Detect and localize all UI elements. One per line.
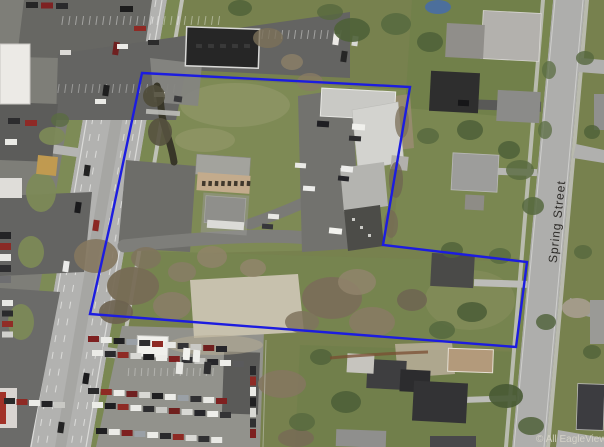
car-ll-1 bbox=[8, 118, 20, 124]
11-item bbox=[165, 342, 176, 348]
tree-bare-3 bbox=[153, 292, 191, 320]
11-item bbox=[118, 404, 129, 410]
car-parcel-2 bbox=[352, 124, 365, 131]
building-left-2 bbox=[0, 178, 22, 198]
grass-island-3 bbox=[18, 236, 44, 268]
kiosk-yellow bbox=[36, 155, 58, 176]
tree-green-22 bbox=[583, 345, 601, 359]
11-item bbox=[92, 402, 103, 408]
5-item bbox=[42, 401, 53, 407]
car-ll-2 bbox=[25, 120, 37, 126]
11-item bbox=[143, 406, 154, 412]
3-item bbox=[26, 2, 38, 8]
grass-island-1 bbox=[39, 127, 65, 145]
tree-bare-17 bbox=[168, 262, 196, 282]
4-item bbox=[2, 332, 13, 338]
tree-green-7 bbox=[498, 141, 520, 159]
tree-green-14 bbox=[310, 349, 332, 365]
12-item bbox=[169, 356, 180, 362]
dumpster bbox=[174, 95, 183, 102]
house-e-1 bbox=[451, 153, 499, 192]
11-item bbox=[114, 338, 125, 344]
11-item bbox=[105, 403, 116, 409]
10-item bbox=[109, 429, 120, 435]
car-parcel-7 bbox=[295, 163, 306, 169]
gravel-circle-e bbox=[562, 298, 592, 318]
5-item bbox=[232, 44, 238, 48]
4-item bbox=[2, 300, 13, 306]
tree-green-3 bbox=[417, 32, 443, 52]
grass-island-2 bbox=[26, 172, 56, 212]
11-item bbox=[114, 390, 125, 396]
tree-bare-14 bbox=[253, 28, 283, 48]
12-item bbox=[130, 353, 141, 359]
tree-green-23 bbox=[51, 113, 69, 127]
12-item bbox=[118, 352, 129, 358]
11-item bbox=[130, 405, 141, 411]
8-item bbox=[234, 181, 238, 186]
house-ne-large bbox=[481, 11, 541, 62]
8-item bbox=[208, 181, 212, 186]
11-item bbox=[190, 396, 201, 402]
11-item bbox=[152, 341, 163, 347]
van-4 bbox=[176, 362, 184, 374]
10-item bbox=[173, 434, 184, 440]
3-item bbox=[41, 3, 53, 9]
car-tl-7 bbox=[95, 99, 106, 104]
building-left-3-red bbox=[0, 392, 6, 424]
12-item bbox=[156, 355, 167, 361]
tree-green-1 bbox=[334, 18, 370, 42]
house-es-2 bbox=[590, 300, 604, 344]
tree-green-6 bbox=[417, 128, 439, 144]
7-item bbox=[250, 429, 256, 438]
car-parcel-1 bbox=[317, 121, 329, 128]
8-item bbox=[202, 181, 206, 186]
tree-bare-10 bbox=[397, 289, 427, 311]
tree-green-13 bbox=[429, 321, 455, 339]
11-item bbox=[101, 337, 112, 343]
car-parcel-4 bbox=[341, 165, 354, 172]
11-item bbox=[152, 393, 163, 399]
car-tl-2 bbox=[134, 26, 146, 31]
11-item bbox=[156, 407, 167, 413]
building-se-tan bbox=[448, 348, 494, 373]
tree-green-26 bbox=[538, 121, 552, 139]
tree-green-4 bbox=[317, 4, 343, 20]
3-item bbox=[360, 226, 363, 229]
house-bottom-1 bbox=[336, 429, 387, 447]
11-item bbox=[139, 392, 150, 398]
tree-bare-8 bbox=[349, 307, 395, 337]
7-item bbox=[250, 387, 256, 396]
van-2 bbox=[193, 350, 201, 362]
11-item bbox=[216, 398, 227, 404]
5-item bbox=[0, 276, 11, 283]
11-item bbox=[178, 395, 189, 401]
11-item bbox=[88, 336, 99, 342]
12-item bbox=[105, 351, 116, 357]
tree-green-10 bbox=[489, 248, 511, 264]
shed-e bbox=[465, 195, 485, 211]
10-item bbox=[96, 428, 107, 434]
house-e-2 bbox=[430, 253, 475, 288]
10-item bbox=[198, 436, 209, 442]
house-bottom-2 bbox=[430, 436, 476, 447]
car-parcel-8 bbox=[303, 186, 315, 192]
pool-tarp bbox=[425, 0, 451, 14]
11-item bbox=[139, 340, 150, 346]
8-item bbox=[221, 181, 225, 186]
5-item bbox=[17, 399, 28, 405]
tree-green-15 bbox=[331, 391, 361, 413]
dry-patch-2 bbox=[175, 128, 235, 152]
house-se-2 bbox=[412, 381, 468, 424]
11-item bbox=[88, 388, 99, 394]
4-item bbox=[2, 311, 13, 317]
white-building-dark bbox=[344, 205, 384, 251]
11-item bbox=[126, 391, 137, 397]
11-item bbox=[203, 397, 214, 403]
5-item bbox=[4, 398, 15, 404]
tree-bare-4 bbox=[99, 300, 133, 324]
tree-green-12 bbox=[457, 302, 487, 322]
7-item bbox=[250, 398, 256, 407]
car-parcel-9 bbox=[268, 214, 279, 220]
tree-creek-1 bbox=[148, 118, 172, 146]
10-item bbox=[211, 437, 222, 443]
tree-green-27 bbox=[506, 160, 534, 180]
5-item bbox=[0, 265, 11, 272]
11-item bbox=[182, 409, 193, 415]
5-item bbox=[208, 44, 214, 48]
11-item bbox=[207, 411, 218, 417]
7-item bbox=[250, 408, 256, 417]
car-tl-4 bbox=[148, 40, 159, 45]
10-item bbox=[186, 435, 197, 441]
11-item bbox=[165, 394, 176, 400]
tree-bare-1 bbox=[74, 239, 118, 273]
5-item bbox=[0, 232, 11, 239]
house-ne-2 bbox=[429, 71, 480, 114]
tree-bare-11 bbox=[338, 269, 376, 295]
tree-green-2 bbox=[381, 13, 411, 35]
building-topleft-white bbox=[0, 44, 30, 104]
11-item bbox=[169, 408, 180, 414]
11-item bbox=[194, 410, 205, 416]
van-3 bbox=[204, 362, 212, 374]
5-item bbox=[220, 44, 226, 48]
12-item bbox=[92, 350, 103, 356]
car-parcel-3 bbox=[349, 136, 361, 142]
3-item bbox=[368, 234, 371, 237]
tree-green-24 bbox=[228, 0, 252, 16]
11-item bbox=[190, 344, 201, 350]
7-item bbox=[250, 419, 256, 428]
8-item bbox=[215, 181, 219, 186]
tree-green-20 bbox=[584, 125, 600, 139]
tree-bare-2 bbox=[107, 267, 159, 305]
5-item bbox=[0, 243, 11, 250]
tree-bare-13 bbox=[281, 54, 303, 70]
house-es-3 bbox=[576, 384, 604, 431]
tree-bare-6 bbox=[240, 259, 266, 277]
11-item bbox=[203, 345, 214, 351]
van-1 bbox=[183, 348, 191, 360]
tree-green-8 bbox=[522, 197, 544, 215]
tree-green-16 bbox=[289, 413, 315, 431]
7-item bbox=[250, 366, 256, 375]
10-item bbox=[160, 433, 171, 439]
tree-green-25 bbox=[542, 61, 556, 79]
10-item bbox=[147, 432, 158, 438]
tree-green-11 bbox=[536, 314, 556, 330]
5-item bbox=[29, 400, 40, 406]
tree-green-18 bbox=[518, 417, 544, 435]
tree-bare-5 bbox=[197, 246, 227, 268]
house-ne-3 bbox=[496, 90, 541, 123]
11-item bbox=[101, 389, 112, 395]
11-item bbox=[216, 346, 227, 352]
car-ll-3 bbox=[5, 139, 17, 145]
5-item bbox=[244, 44, 250, 48]
car-tl-5 bbox=[60, 50, 71, 55]
car-h2-drive bbox=[458, 100, 469, 106]
5-item bbox=[196, 44, 202, 48]
tree-green-17 bbox=[489, 384, 523, 408]
8-item bbox=[247, 181, 251, 186]
house-es-1 bbox=[594, 94, 604, 130]
aerial-viewport[interactable]: Spring Street © All EagleView bbox=[0, 0, 604, 447]
tree-green-9 bbox=[441, 242, 463, 258]
tree-green-19 bbox=[576, 51, 594, 65]
3-item bbox=[56, 3, 68, 9]
tree-green-21 bbox=[574, 245, 592, 259]
8-item bbox=[227, 181, 231, 186]
7-item bbox=[250, 377, 256, 386]
car-tl-3 bbox=[117, 44, 128, 49]
house-ne-large-wing bbox=[445, 23, 485, 59]
4-item bbox=[2, 321, 13, 327]
tree-bare-18 bbox=[131, 247, 161, 269]
10-item bbox=[134, 431, 145, 437]
car-tl-1 bbox=[120, 6, 133, 12]
tree-creek-2 bbox=[143, 85, 165, 107]
car-parcel-10 bbox=[262, 224, 273, 230]
5-item bbox=[0, 254, 11, 261]
5-item bbox=[54, 402, 65, 408]
10-item bbox=[122, 430, 133, 436]
scene-shapes bbox=[0, 0, 604, 447]
tree-green-5 bbox=[457, 120, 483, 140]
tree-bare-16 bbox=[278, 429, 314, 447]
3-item bbox=[352, 218, 355, 221]
watermark: © All EagleView bbox=[536, 434, 604, 445]
11-item bbox=[220, 412, 231, 418]
12-item bbox=[143, 354, 154, 360]
aerial-scene: Spring Street © All EagleView bbox=[0, 0, 604, 447]
12-item bbox=[233, 361, 244, 367]
11-item bbox=[126, 339, 137, 345]
12-item bbox=[220, 360, 231, 366]
8-item bbox=[240, 181, 244, 186]
